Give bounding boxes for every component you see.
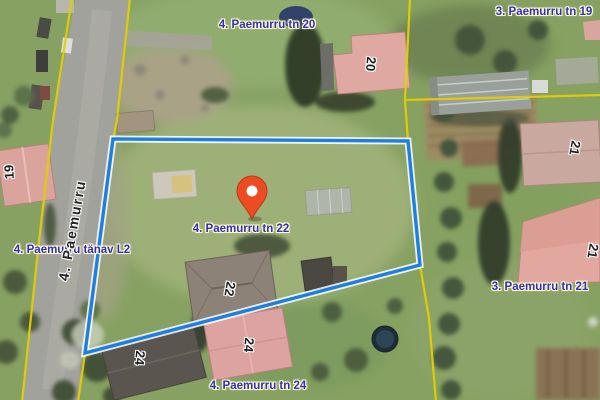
white-structure bbox=[152, 169, 197, 199]
building-21 bbox=[520, 120, 600, 186]
corner-roof bbox=[583, 20, 600, 40]
building-20-annex bbox=[320, 43, 334, 91]
greenhouse-19 bbox=[429, 71, 531, 116]
shed bbox=[116, 110, 155, 133]
map-viewport[interactable]: 4. Paemurru tn 20 3. Paemurru tn 19 4. P… bbox=[0, 0, 600, 400]
white-shed bbox=[532, 80, 548, 93]
pool-water bbox=[376, 330, 394, 348]
blue-tarp bbox=[279, 6, 313, 28]
gray-structure bbox=[555, 57, 598, 85]
greenhouse-22 bbox=[305, 187, 352, 215]
aerial-map-canvas bbox=[0, 0, 600, 400]
